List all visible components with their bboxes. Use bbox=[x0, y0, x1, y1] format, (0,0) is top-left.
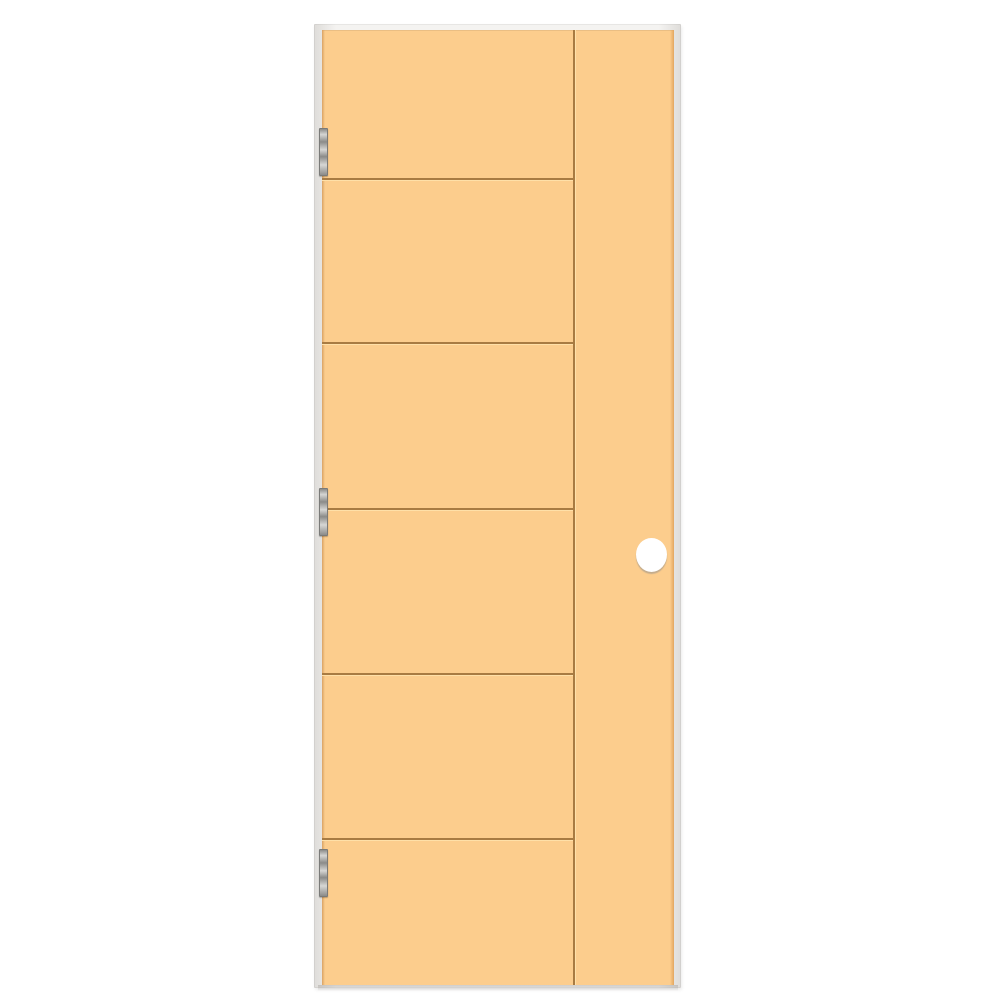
door-scene bbox=[0, 0, 1000, 1000]
horizontal-groove bbox=[322, 178, 573, 180]
door-bottom-shadow bbox=[318, 985, 678, 991]
door-slab-right-edge bbox=[670, 30, 674, 985]
hinge bbox=[319, 849, 328, 897]
horizontal-groove bbox=[322, 508, 573, 510]
hinge bbox=[319, 488, 328, 536]
horizontal-groove bbox=[322, 838, 573, 840]
horizontal-groove bbox=[322, 673, 573, 675]
hinge bbox=[319, 128, 328, 176]
vertical-groove bbox=[573, 30, 575, 985]
bore-hole bbox=[636, 538, 667, 572]
horizontal-groove bbox=[322, 342, 573, 344]
